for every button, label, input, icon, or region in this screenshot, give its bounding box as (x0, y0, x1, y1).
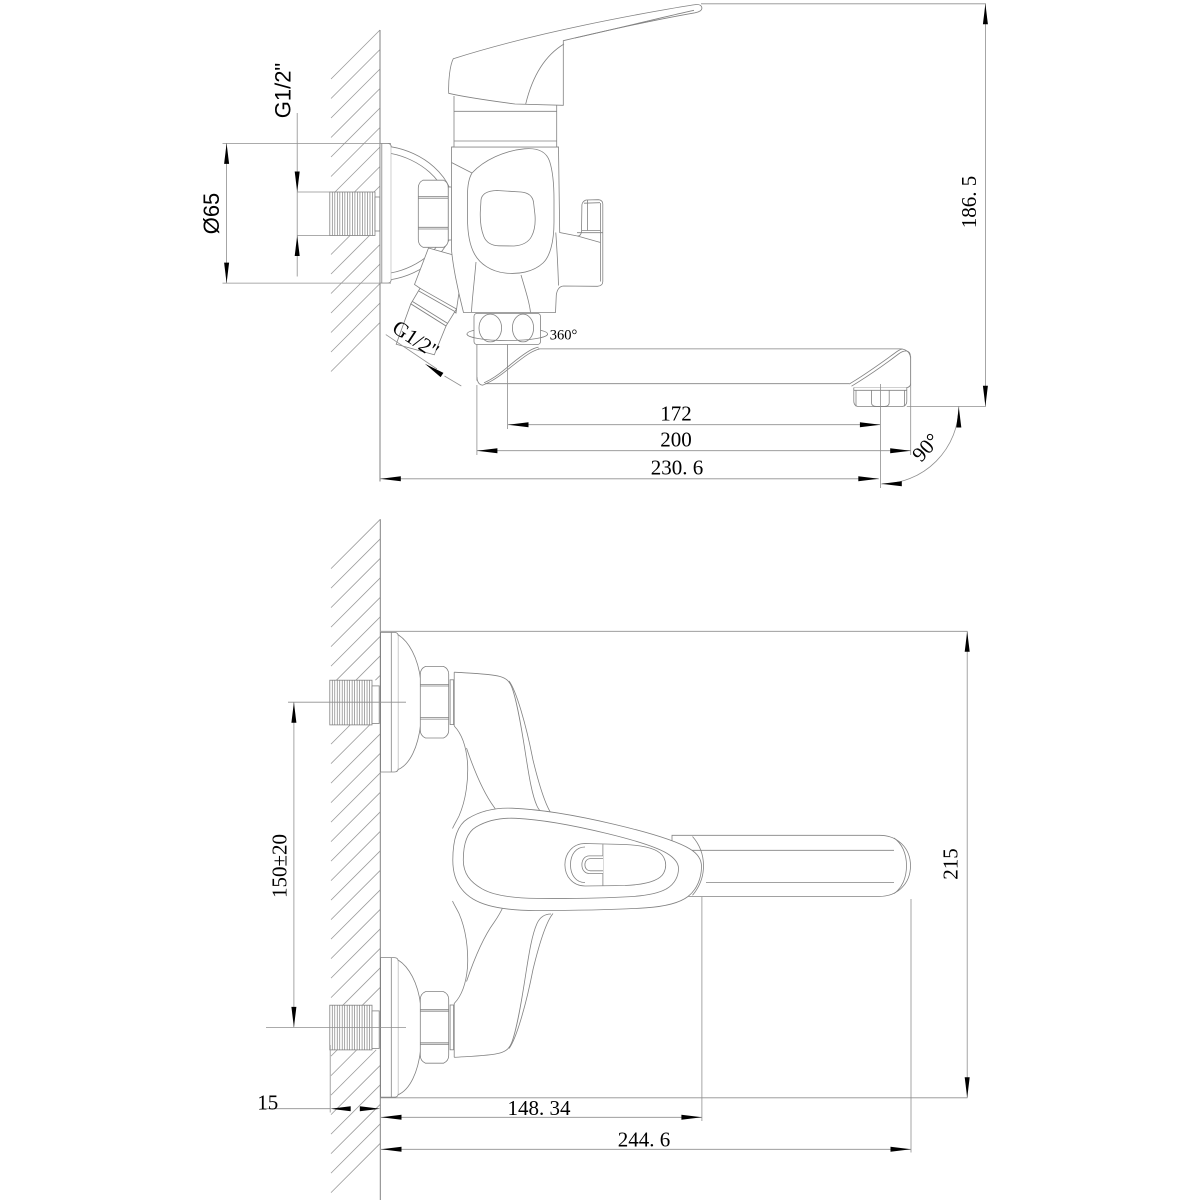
svg-text:215: 215 (939, 848, 963, 880)
svg-text:230. 6: 230. 6 (651, 456, 704, 480)
svg-text:Ø65: Ø65 (199, 193, 224, 235)
svg-text:360°: 360° (550, 328, 578, 344)
svg-text:15: 15 (257, 1091, 278, 1115)
svg-text:172: 172 (660, 402, 692, 426)
svg-text:200: 200 (660, 428, 692, 452)
svg-text:186. 5: 186. 5 (957, 176, 981, 229)
svg-text:244. 6: 244. 6 (618, 1128, 671, 1152)
svg-text:150±20: 150±20 (268, 834, 292, 898)
svg-text:148. 34: 148. 34 (508, 1096, 572, 1120)
svg-text:G1/2": G1/2" (271, 63, 296, 119)
